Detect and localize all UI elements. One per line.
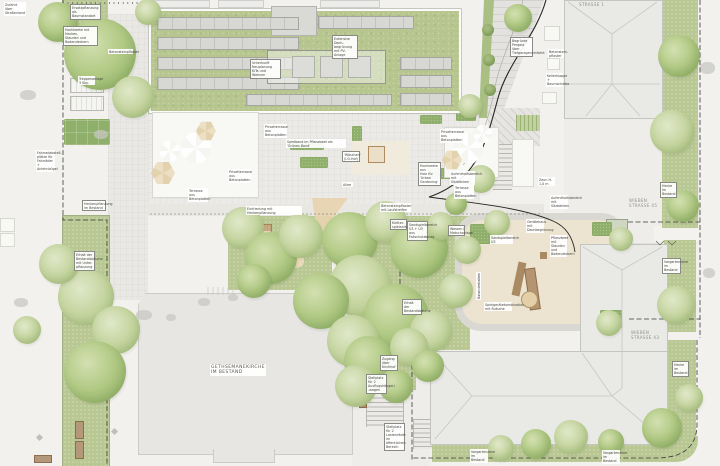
- label-einfriedung: Einfriedung mit Heckenpflanzung: [246, 206, 302, 215]
- tree: [484, 210, 510, 236]
- tree: [64, 341, 126, 403]
- tree: [657, 286, 695, 324]
- courtyard-bed: [420, 115, 442, 124]
- label-dach-pv: Extensive Dach- begrünung mit PV- Anlage: [332, 35, 358, 59]
- pv-panel-row: [157, 17, 299, 30]
- building-northeast: [564, 0, 663, 119]
- label-wieben43: WIEBEN STRASSE 43: [630, 329, 660, 340]
- courtyard-bed: [300, 157, 328, 168]
- label-urban-gardening: Hochbeete aus Holz für 'Urban Gardening': [418, 162, 441, 186]
- tree: [439, 274, 473, 308]
- label-vorgarten-sued-2: Vorgartenzone im Bestand: [602, 450, 620, 464]
- label-allee: Allee: [342, 182, 353, 187]
- shrub-patch: [700, 62, 715, 74]
- bench: [34, 455, 52, 463]
- roof-terrace-panel: [292, 56, 315, 78]
- climbing-plant: [483, 54, 495, 66]
- tree: [658, 35, 700, 77]
- label-vorgarten-sued-1: Vorgartenzone im Bestand: [470, 449, 488, 463]
- label-balancier: Balancierbalken: [476, 272, 481, 300]
- label-pergola: Begrünte Pergola über Tiefgarageneinfahr…: [510, 37, 533, 57]
- bike-rack: [70, 96, 104, 111]
- tree: [237, 264, 271, 298]
- label-stellplatz-wagen: Stellplatz für 2 Ausflugshänger/ -wagen: [366, 374, 387, 394]
- bench: [75, 441, 84, 459]
- shrub-patch: [14, 298, 28, 307]
- label-strasse1: STRASSE 1: [578, 1, 605, 7]
- shrub-patch: [94, 130, 108, 139]
- entry-porch: [547, 58, 560, 70]
- tree: [675, 384, 703, 412]
- label-pflanzbeet: Pflanzbeet mit Stauden und Bodendeckern: [550, 235, 567, 257]
- label-betonstein-ost: Betonstein- pflaster: [548, 49, 564, 58]
- pv-panel-row: [400, 57, 452, 70]
- label-aufenthalt-1: Aufenthaltsbereich mit Sitzbänken: [450, 171, 475, 185]
- label-wasser: Wasser-/ Matschanlage: [448, 225, 465, 236]
- pv-panel-row: [400, 93, 452, 106]
- label-privatterrasse-2: Privatterrasse aus Betonplatten: [228, 169, 251, 183]
- label-betonstein-west: Betonsteinpflaster: [108, 49, 133, 54]
- parked-rect: [0, 218, 15, 232]
- label-hecke-west: Heckenpflanzung im Bestand: [82, 200, 106, 211]
- bench: [75, 421, 84, 439]
- label-zugang-kirchhof: Zugang über Kirchhof: [380, 355, 398, 371]
- site-plan: Zufahrt über Straßenland Ersatzpflanzung…: [0, 0, 720, 466]
- tree: [504, 4, 532, 32]
- entry-porch: [542, 92, 557, 104]
- label-terrasse-2: Terrasse aus Betonplatten: [454, 185, 474, 199]
- label-laufstreifen: Betonsteinpflaster mit Laufstreifen: [380, 203, 411, 212]
- label-privatterrasse-1: Privatterrasse aus Betonplatten: [264, 124, 287, 138]
- label-zufahrt: Zufahrt über Straßenland: [4, 2, 26, 16]
- pv-panel-row: [400, 75, 452, 88]
- stair-landing: [512, 139, 534, 187]
- label-hecke-ost-2: Hecke im Bestand: [672, 361, 689, 377]
- tree: [609, 227, 633, 251]
- label-zaun: Zaun H. 1,0 m: [538, 177, 555, 186]
- tree: [650, 110, 694, 154]
- label-wieben45: WIEBEN STRASSE 45: [628, 197, 658, 208]
- existing-shed: [320, 0, 380, 8]
- entry-porch: [544, 26, 560, 41]
- label-ersatzpflanzung: Ersatzpflanzung als Baumstandort: [70, 4, 101, 20]
- label-stellplatz-lasten: Stellplatz für 2 Lastenräder im öffentli…: [384, 423, 405, 451]
- tree: [521, 429, 551, 459]
- play-structure-post: [540, 252, 547, 259]
- shrub-patch: [228, 294, 238, 301]
- tree: [596, 310, 622, 336]
- sandbox-frame: [368, 146, 385, 163]
- tree: [412, 350, 444, 382]
- courtyard-bed: [352, 126, 362, 142]
- label-geraetehaus: Gerätehaus mit Dachbegrünung: [526, 219, 544, 233]
- marker-diamond: [111, 428, 118, 435]
- label-fahrrad-west: Fahrradabstell- plätze für Fahrräder + A…: [36, 150, 55, 172]
- label-aufenthalt-2: Aufenthaltsbereich mit Sitzbänken: [550, 195, 568, 209]
- existing-shed: [218, 0, 264, 8]
- shrub-patch: [20, 90, 36, 100]
- label-vorgarten-ost: Vorgartenzone im Bestand: [662, 258, 681, 274]
- label-hecke-ost-1: Hecke im Bestand: [660, 182, 677, 198]
- climbing-plant: [482, 24, 494, 36]
- tree: [112, 76, 154, 118]
- label-erhalt-mitte: Erhalt der Bestandsbäume: [402, 299, 422, 315]
- roof-terrace-panel: [348, 56, 371, 78]
- shrub-patch: [136, 310, 152, 320]
- label-sand-u3u6: Sandspielbereich U3 + Ü3 aus Fallschutzb…: [407, 221, 428, 241]
- label-privatterrasse-3: Privatterrasse aus Betonplatten: [440, 129, 463, 143]
- marker-diamond: [36, 434, 43, 441]
- church-annex: [213, 449, 275, 463]
- label-erhalt-west: Erhalt der Bestandsbäume mit Unter- pfla…: [74, 251, 95, 271]
- parked-rect: [0, 233, 15, 247]
- label-waeschen: 'Wäschen' (U3-Hof): [342, 151, 360, 162]
- tree: [458, 94, 482, 118]
- tree: [453, 236, 481, 264]
- label-terrasse-1: Terrasse aus Betonplatten: [188, 188, 208, 202]
- tree: [488, 435, 514, 461]
- label-sandspiel-u3: Sandspielbereich U3: [490, 235, 513, 244]
- label-gruenes-band: Spielband im Pflanzbeet als 'Grünes Band…: [286, 139, 346, 148]
- shrub-patch: [198, 298, 210, 306]
- label-treppe: Treppenanlage 3 Stg.: [78, 76, 95, 85]
- shrub-patch: [166, 314, 176, 321]
- label-dach-neu: Unterkunft Neuplanung KiTa und Wohnen: [250, 59, 281, 79]
- tree: [279, 214, 323, 258]
- pv-panel-row: [318, 16, 414, 29]
- tree: [39, 244, 79, 284]
- parasol-canopy: [474, 125, 492, 143]
- tree: [642, 408, 682, 448]
- building-southeast-wing-south: [430, 351, 668, 445]
- label-church: GETHSEMANEKIRCHE IM BESTAND: [210, 364, 266, 376]
- pv-panel-row: [246, 94, 392, 106]
- tree: [13, 316, 41, 344]
- pv-panel-row: [157, 37, 299, 50]
- label-kletteranlage: Kletter- spielanlage: [390, 219, 407, 230]
- parasol-canopy: [160, 141, 180, 161]
- climbing-plant: [484, 84, 496, 96]
- ramp-planting-hatch: [516, 115, 540, 131]
- label-kellerklappe: Kellerklappe + Baumscheibe: [546, 73, 563, 87]
- label-hochbeete: Hochbeete mit Hecken, Stauden und Bodend…: [63, 26, 98, 46]
- shrub-patch: [703, 268, 715, 278]
- roof-terrace-panel: [320, 56, 343, 78]
- label-spielkombi: Spielgerätekombination mit Rutsche: [484, 302, 512, 311]
- tree: [554, 420, 588, 454]
